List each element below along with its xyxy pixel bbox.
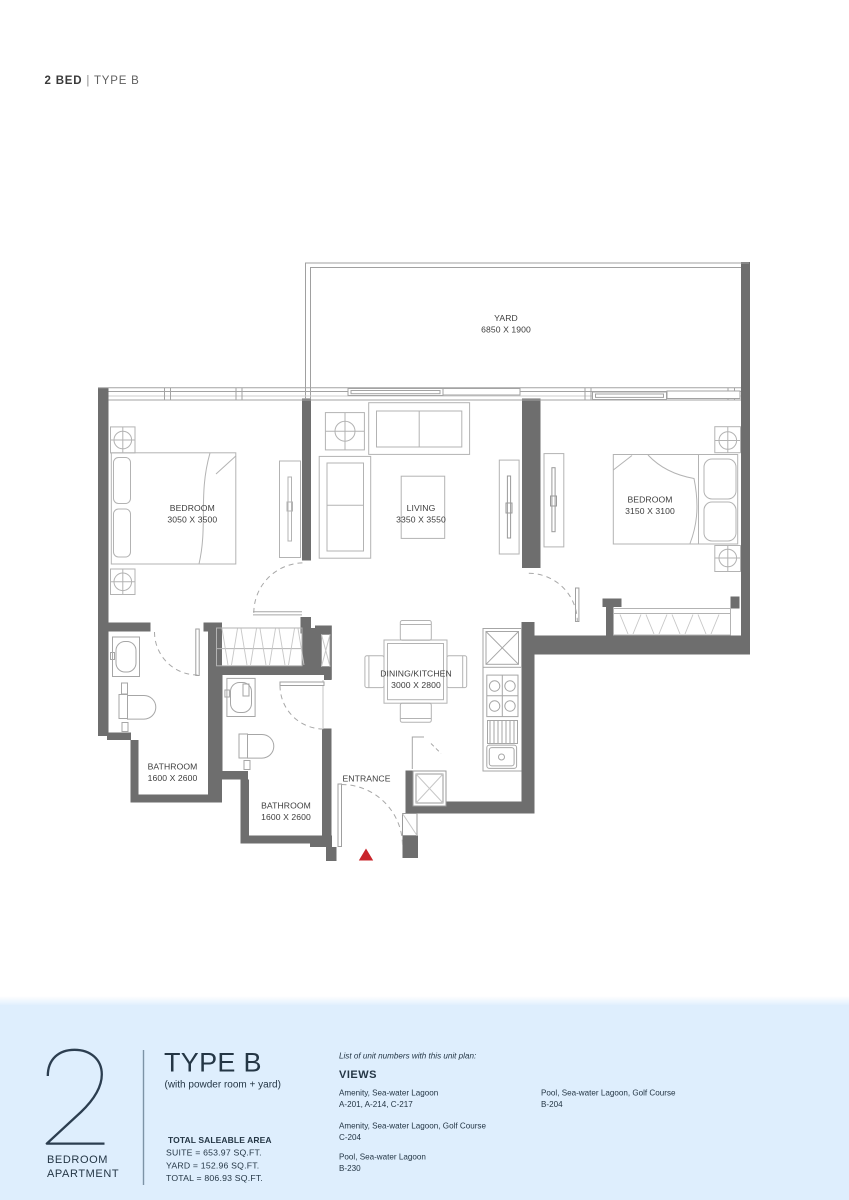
svg-text:BEDROOM: BEDROOM <box>47 1154 108 1166</box>
svg-text:List of unit numbers with this: List of unit numbers with this unit plan… <box>339 1052 476 1061</box>
svg-text:TYPE B: TYPE B <box>164 1048 262 1078</box>
svg-text:LIVING: LIVING <box>407 503 436 513</box>
svg-text:6850 X 1900: 6850 X 1900 <box>481 325 531 335</box>
svg-text:B-204: B-204 <box>541 1100 563 1109</box>
svg-text:3350 X 3550: 3350 X 3550 <box>396 515 446 525</box>
svg-text:3050 X 3500: 3050 X 3500 <box>167 515 217 525</box>
svg-text:Amenity, Sea-water Lagoon: Amenity, Sea-water Lagoon <box>339 1089 438 1098</box>
svg-text:TOTAL SALEABLE AREA: TOTAL SALEABLE AREA <box>168 1135 272 1145</box>
svg-text:SUITE = 653.97 SQ.FT.: SUITE = 653.97 SQ.FT. <box>166 1148 262 1158</box>
svg-text:BEDROOM: BEDROOM <box>627 495 672 505</box>
svg-text:Amenity, Sea-water Lagoon, Gol: Amenity, Sea-water Lagoon, Golf Course <box>339 1122 486 1131</box>
svg-text:Pool, Sea-water Lagoon, Golf C: Pool, Sea-water Lagoon, Golf Course <box>541 1089 676 1098</box>
svg-text:B-230: B-230 <box>339 1164 361 1173</box>
svg-text:2 BED | TYPE B: 2 BED | TYPE B <box>45 75 140 87</box>
svg-text:Pool, Sea-water Lagoon: Pool, Sea-water Lagoon <box>339 1153 426 1162</box>
svg-text:C-204: C-204 <box>339 1133 362 1142</box>
svg-text:1600 X 2600: 1600 X 2600 <box>261 812 311 822</box>
svg-text:YARD = 152.96 SQ.FT.: YARD = 152.96 SQ.FT. <box>166 1161 259 1171</box>
svg-text:3150 X 3100: 3150 X 3100 <box>625 506 675 516</box>
svg-text:BATHROOM: BATHROOM <box>148 762 198 772</box>
svg-text:ENTRANCE: ENTRANCE <box>342 774 390 784</box>
svg-text:DINING/KITCHEN: DINING/KITCHEN <box>380 669 452 679</box>
svg-text:VIEWS: VIEWS <box>339 1069 377 1081</box>
svg-text:APARTMENT: APARTMENT <box>47 1168 119 1180</box>
svg-text:BEDROOM: BEDROOM <box>170 503 215 513</box>
svg-text:A-201, A-214, C-217: A-201, A-214, C-217 <box>339 1100 413 1109</box>
svg-text:(with powder room + yard): (with powder room + yard) <box>165 1080 281 1091</box>
svg-text:BATHROOM: BATHROOM <box>261 801 311 811</box>
svg-text:TOTAL = 806.93 SQ.FT.: TOTAL = 806.93 SQ.FT. <box>166 1173 263 1183</box>
svg-text:YARD: YARD <box>494 313 518 323</box>
svg-text:1600 X 2600: 1600 X 2600 <box>148 773 198 783</box>
svg-text:3000 X 2800: 3000 X 2800 <box>391 680 441 690</box>
